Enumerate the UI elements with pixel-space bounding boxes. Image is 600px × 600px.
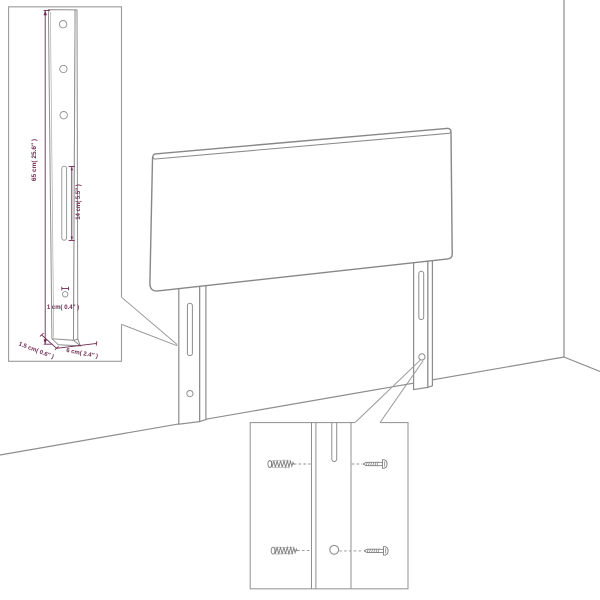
- right-leg-slot: [419, 271, 424, 319]
- callout-lines-left: [122, 297, 178, 346]
- slot-length-label: 14 cm( 5.5″ ): [76, 184, 82, 220]
- left-leg-side-face: [200, 284, 206, 421]
- wall-corner-line: [564, 0, 600, 372]
- hole-diameter-label: 1 cm( 0.4″ ): [47, 305, 79, 311]
- inset-leg-slot: [62, 166, 67, 240]
- left-leg: [179, 284, 206, 424]
- left-leg-hole: [187, 391, 193, 397]
- panel-front-face: [150, 128, 452, 291]
- inset-leg-small-hole: [62, 292, 67, 297]
- inset-leg-hole-1: [59, 21, 66, 28]
- inset-leg-drawing: [48, 10, 80, 346]
- inset-leg-hole-3: [60, 112, 67, 119]
- headboard-assembly-diagram: 65 cm( 25.6″ ) 14 cm( 5.5″ ) 1 cm( 0.4″ …: [0, 0, 600, 600]
- headboard-panel: [150, 128, 452, 291]
- inset2-box: [250, 423, 408, 589]
- leg-height-label: 65 cm( 25.6″ ): [32, 139, 39, 181]
- inset-leg-hole-2: [60, 65, 67, 72]
- left-leg-slot: [187, 303, 192, 355]
- mounting-detail-inset: [250, 423, 408, 589]
- right-leg-side-face: [428, 261, 433, 388]
- inset2-hole: [330, 545, 339, 554]
- right-leg-hole: [419, 354, 425, 360]
- line-art-canvas: [0, 0, 600, 600]
